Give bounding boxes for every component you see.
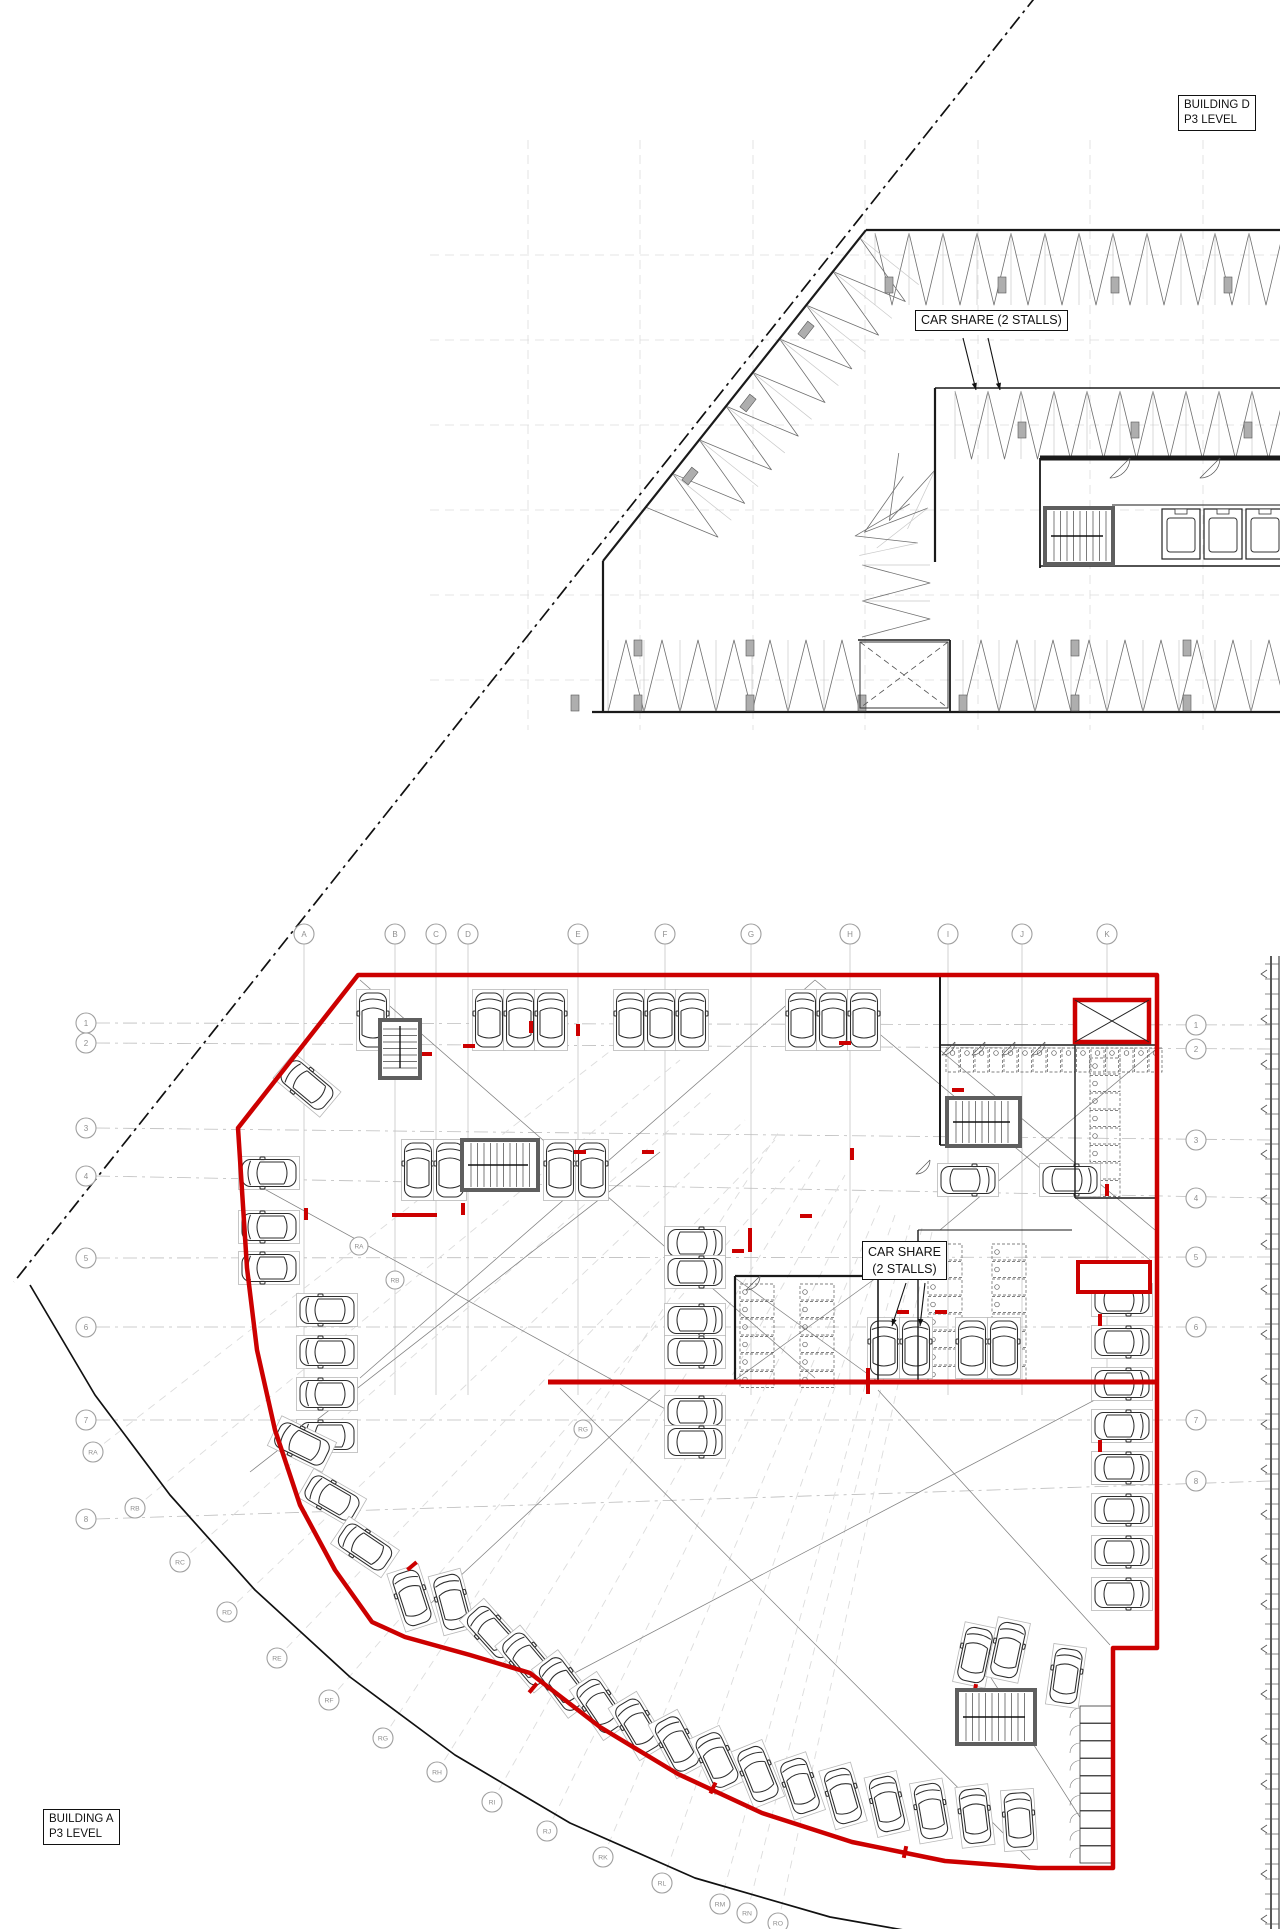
- car-symbol: [668, 1227, 722, 1259]
- car-symbol: [1095, 1494, 1149, 1526]
- bike-rack: [992, 1297, 1026, 1313]
- bike-rack-hoop: [743, 1342, 748, 1347]
- grid-bubble: RF: [319, 1690, 339, 1710]
- parked-car: [1000, 1788, 1037, 1851]
- grid-bubble-label: RI: [489, 1799, 496, 1806]
- building-d-label: BUILDING D P3 LEVEL: [1178, 95, 1256, 131]
- strip-chevron: [1261, 1330, 1267, 1338]
- storage-locker: [1080, 1776, 1112, 1793]
- parked-car: [774, 1752, 825, 1820]
- grid-bubble: H: [840, 924, 860, 944]
- bike-rack: [740, 1337, 774, 1353]
- parked-car: [955, 1784, 995, 1849]
- grid-bubble: E: [568, 924, 588, 944]
- parking-stall-v: [875, 233, 909, 305]
- column: [1018, 422, 1026, 438]
- parked-car: [273, 1053, 341, 1117]
- bike-rack-hoop: [995, 1302, 1000, 1307]
- parked-car: [330, 1516, 399, 1577]
- car-symbol: [941, 1164, 995, 1196]
- column: [634, 640, 642, 656]
- grid-bubble: G: [741, 924, 761, 944]
- parking-stall-v: [824, 640, 860, 712]
- red-wheel-stop: [839, 1041, 851, 1045]
- grid-bubble-label: J: [1020, 930, 1024, 939]
- stall-divider: [806, 305, 865, 352]
- storage-locker: [1080, 1741, 1112, 1758]
- bike-rack: [990, 1048, 1003, 1072]
- column: [1244, 422, 1252, 438]
- strip-chevron: [1261, 1420, 1267, 1428]
- bike-rack-hoop: [1139, 1051, 1144, 1056]
- strip-chevron: [1261, 1645, 1267, 1653]
- grid-bubble-label: 3: [1194, 1136, 1199, 1145]
- grid-bubble: 2: [1186, 1039, 1206, 1059]
- strip-chevron: [1261, 1555, 1267, 1563]
- grid-bubble: 2: [76, 1033, 96, 1053]
- strip-chevron: [1261, 1510, 1267, 1518]
- bike-rack-hoop: [995, 1285, 1000, 1290]
- parked-car: [1092, 1536, 1153, 1569]
- grid-bubble: RL: [652, 1873, 672, 1893]
- grid-bubble-label: 8: [84, 1515, 89, 1524]
- parking-stall-v: [909, 233, 943, 305]
- bike-rack-hoop: [995, 1267, 1000, 1272]
- grid-bubble: RA: [83, 1442, 103, 1462]
- car-share-lower-label: CAR SHARE (2 STALLS): [862, 1241, 947, 1280]
- parking-stall-v: [862, 565, 930, 601]
- bike-rack: [975, 1048, 988, 1072]
- red-wheel-stop: [304, 1208, 308, 1220]
- grid-bubble-label: RB: [130, 1505, 140, 1512]
- parked-car: [239, 1157, 300, 1190]
- bike-rack: [1090, 1128, 1120, 1144]
- bike-rack: [1135, 1048, 1148, 1072]
- column: [746, 695, 754, 711]
- parking-stall-v: [1035, 640, 1071, 712]
- bike-rack: [800, 1337, 834, 1353]
- grid-bubble: RA: [350, 1237, 368, 1255]
- strip-chevron: [1261, 1060, 1267, 1068]
- bike-rack: [1090, 1146, 1120, 1162]
- grid-bubble: K: [1097, 924, 1117, 944]
- strip-chevron: [1261, 1465, 1267, 1473]
- parking-stall-v: [1107, 640, 1143, 712]
- grid-bubble-label: H: [847, 930, 853, 939]
- grid-bubble: RD: [217, 1602, 237, 1622]
- car-symbol: [668, 1304, 722, 1336]
- parked-car: [909, 1778, 952, 1844]
- parking-stall-v: [1143, 640, 1179, 712]
- parked-car: [819, 1762, 868, 1830]
- strip-chevron: [1261, 1240, 1267, 1248]
- car-symbol: [614, 993, 646, 1047]
- grid-line-radial: [135, 1060, 680, 1508]
- parking-stall-v: [699, 406, 771, 470]
- car-symbol: [544, 1143, 576, 1197]
- leader-arrow: [963, 338, 976, 390]
- bike-rack-hoop: [743, 1307, 748, 1312]
- grid-bubble-label: 7: [84, 1416, 89, 1425]
- stall-divider: [753, 373, 812, 420]
- grid-bubble-label: 4: [84, 1172, 89, 1181]
- leader-arrowhead: [972, 383, 977, 390]
- parking-stall-v: [977, 233, 1011, 305]
- red-wheel-stop: [461, 1203, 465, 1215]
- parked-car: [665, 1396, 726, 1429]
- grid-bubble-label: 2: [84, 1039, 89, 1048]
- parking-stall-v: [943, 233, 977, 305]
- stall-divider: [877, 508, 928, 548]
- door-swing: [1032, 1042, 1045, 1055]
- grid-bubble-label: E: [575, 930, 580, 939]
- car-symbol: [1043, 1164, 1097, 1196]
- column: [746, 640, 754, 656]
- bike-rack-hoop: [931, 1285, 936, 1290]
- red-wheel-stop: [952, 1088, 964, 1092]
- car-symbol: [300, 1294, 354, 1326]
- storage-locker: [1080, 1724, 1112, 1741]
- grid-bubble: C: [426, 924, 446, 944]
- column: [634, 695, 642, 711]
- stall-divider: [908, 470, 935, 529]
- parked-car: [986, 1617, 1031, 1684]
- grid-bubble-label: 3: [84, 1124, 89, 1133]
- strip-chevron: [1261, 1690, 1267, 1698]
- grid-bubble: 8: [1186, 1471, 1206, 1491]
- bike-rack: [1077, 1048, 1090, 1072]
- parked-car: [473, 990, 506, 1051]
- parking-stall-v: [680, 640, 716, 712]
- column: [959, 695, 967, 711]
- car-symbol: [1001, 1792, 1037, 1848]
- red-wheel-stop: [897, 1310, 909, 1314]
- grid-bubble: 8: [76, 1509, 96, 1529]
- locker-door-swing: [1070, 1708, 1080, 1718]
- service-shaft: [1078, 1262, 1150, 1292]
- red-wheel-stop: [800, 1214, 812, 1218]
- parking-stall-v: [788, 640, 824, 712]
- locker-door-swing: [1070, 1831, 1080, 1841]
- grid-bubble-label: 1: [84, 1019, 89, 1028]
- parked-car: [297, 1378, 358, 1411]
- strip-chevron: [1261, 970, 1267, 978]
- building-a-label: BUILDING A P3 LEVEL: [43, 1809, 120, 1845]
- locker-door-swing: [1070, 1761, 1080, 1771]
- bike-rack-hoop: [1095, 1051, 1100, 1056]
- storage-locker: [1080, 1811, 1112, 1828]
- grid-bubble-label: A: [301, 930, 307, 939]
- stall-divider: [699, 440, 758, 487]
- red-wheel-stop: [935, 1310, 947, 1314]
- grid-bubble-label: RG: [578, 1426, 588, 1433]
- floor-plan-svg: ABCDEFGHIJK1122334455667788RARBRCRDRERFR…: [0, 0, 1280, 1929]
- parking-stall-v: [1045, 233, 1079, 305]
- column: [1224, 277, 1232, 293]
- car-symbol: [1095, 1410, 1149, 1442]
- car-symbol: [868, 1321, 900, 1375]
- door-swing: [746, 1276, 760, 1290]
- grid-bubble-label: 7: [1194, 1416, 1199, 1425]
- bike-rack-hoop: [1093, 1116, 1098, 1121]
- bike-rack-hoop: [743, 1360, 748, 1365]
- grid-bubble-label: RO: [773, 1920, 783, 1927]
- storage-locker: [1080, 1829, 1112, 1846]
- bike-rack: [1120, 1048, 1133, 1072]
- parking-stall-v: [1113, 233, 1147, 305]
- parking-stall-v: [806, 272, 878, 336]
- building-a-line2: P3 LEVEL: [49, 1827, 114, 1842]
- parking-stall-v: [726, 373, 798, 437]
- parking-stall-v: [1215, 233, 1249, 305]
- strip-chevron: [1261, 1015, 1267, 1023]
- grid-bubble: RO: [768, 1913, 788, 1929]
- car-symbol: [242, 1157, 296, 1189]
- parked-car: [938, 1164, 999, 1197]
- grid-bubble-label: I: [947, 930, 949, 939]
- bike-rack-hoop: [1023, 1051, 1028, 1056]
- car-symbol: [1095, 1326, 1149, 1358]
- grid-bubble-label: C: [433, 930, 439, 939]
- grid-line-radial: [329, 1160, 800, 1700]
- red-wheel-stop: [1098, 1440, 1102, 1452]
- grid-bubble-label: 2: [1194, 1045, 1199, 1054]
- car-symbol: [668, 1396, 722, 1428]
- grid-bubble: RN: [737, 1903, 757, 1923]
- column: [1183, 695, 1191, 711]
- grid-bubble: 1: [1186, 1015, 1206, 1035]
- grid-bubble: 3: [1186, 1130, 1206, 1150]
- column: [1111, 277, 1119, 293]
- grid-bubble: D: [458, 924, 478, 944]
- grid-bubble-label: 4: [1194, 1194, 1199, 1203]
- car-symbol: [473, 993, 505, 1047]
- grid-bubble: 4: [1186, 1188, 1206, 1208]
- parking-stall-v: [780, 305, 852, 369]
- grid-bubble: 6: [76, 1317, 96, 1337]
- car-share-top-label: CAR SHARE (2 STALLS): [915, 310, 1068, 331]
- parking-stall-v: [1251, 640, 1280, 712]
- strip-chevron: [1261, 1870, 1267, 1878]
- grid-bubble: RJ: [537, 1821, 557, 1841]
- locker-door-swing: [1070, 1726, 1080, 1736]
- parked-car: [676, 990, 709, 1051]
- column: [682, 467, 698, 485]
- column: [1183, 640, 1191, 656]
- grid-bubble-label: 6: [84, 1323, 89, 1332]
- grid-bubble: B: [385, 924, 405, 944]
- bike-rack-hoop: [1093, 1099, 1098, 1104]
- grid-line-radial: [437, 1160, 820, 1772]
- parked-car: [1092, 1410, 1153, 1443]
- bike-rack: [740, 1284, 774, 1300]
- strip-chevron: [1261, 1825, 1267, 1833]
- red-wheel-stop: [463, 1044, 475, 1048]
- car-symbol: [900, 1321, 932, 1375]
- parked-car: [297, 1336, 358, 1369]
- grid-bubble-label: RA: [354, 1243, 364, 1250]
- grid-bubble: RE: [267, 1648, 287, 1668]
- grid-bubbles: ABCDEFGHIJK1122334455667788RARBRCRDRERFR…: [76, 924, 1206, 1929]
- parking-stall-v: [864, 476, 928, 532]
- parked-car: [868, 1318, 901, 1379]
- bike-rack-hoop: [803, 1342, 808, 1347]
- car-symbol: [402, 1143, 434, 1197]
- parking-stall-v: [1249, 233, 1280, 305]
- column: [1071, 640, 1079, 656]
- column: [798, 321, 814, 339]
- strip-chevron: [1261, 1600, 1267, 1608]
- wall: [603, 230, 866, 561]
- parking-stall-v: [999, 640, 1035, 712]
- bike-rack-hoop: [995, 1250, 1000, 1255]
- bike-rack-hoop: [1066, 1051, 1071, 1056]
- grid-bubble-label: 5: [84, 1254, 89, 1263]
- bike-rack-hoop: [803, 1360, 808, 1365]
- grid-bubble-label: B: [392, 930, 397, 939]
- grid-bubble-label: RD: [222, 1609, 232, 1616]
- bike-rack-hoop: [1093, 1151, 1098, 1156]
- property-line: [14, 0, 1037, 1282]
- column: [1131, 422, 1139, 438]
- red-wheel-stop: [1105, 1184, 1109, 1196]
- parked-car: [988, 1318, 1021, 1379]
- bike-rack: [800, 1354, 834, 1370]
- building-a-line1: BUILDING A: [49, 1812, 114, 1827]
- sight-line: [878, 1390, 1110, 1645]
- car-symbol: [504, 993, 536, 1047]
- parking-stall-v: [753, 339, 825, 403]
- parked-car: [665, 1426, 726, 1459]
- grid-bubble: RK: [593, 1847, 613, 1867]
- grid-bubble-label: RE: [272, 1655, 282, 1662]
- elevator-door: [1217, 509, 1229, 514]
- parked-car: [239, 1211, 300, 1244]
- upper-plan: [571, 230, 1280, 712]
- red-wheel-stop: [1098, 1314, 1102, 1326]
- parked-car: [900, 1318, 933, 1379]
- grid-bubble: RC: [170, 1552, 190, 1572]
- grid-bubble-label: RC: [175, 1559, 185, 1566]
- parked-car: [544, 1140, 577, 1201]
- grid-bubble-label: RB: [390, 1277, 399, 1284]
- parked-car: [402, 1140, 435, 1201]
- column: [998, 277, 1006, 293]
- bike-rack-hoop: [965, 1051, 970, 1056]
- stall-divider: [673, 474, 732, 521]
- car-symbol: [668, 1426, 722, 1458]
- parked-car: [665, 1336, 726, 1369]
- parked-car: [1092, 1578, 1153, 1611]
- bike-rack: [992, 1262, 1026, 1278]
- grid-bubble-label: 8: [1194, 1477, 1199, 1486]
- grid-bubble: RI: [482, 1792, 502, 1812]
- grid-bubble-label: F: [663, 930, 668, 939]
- grid-bubble: 5: [76, 1248, 96, 1268]
- door-swing: [972, 1042, 985, 1055]
- locker-door-swing: [1070, 1778, 1080, 1788]
- column: [1071, 695, 1079, 711]
- locker-door-swing: [1070, 1743, 1080, 1753]
- parked-car: [665, 1256, 726, 1289]
- parked-car: [535, 990, 568, 1051]
- parking-stall-v: [752, 640, 788, 712]
- grid-bubble: RB: [386, 1271, 404, 1289]
- car-symbol: [645, 993, 677, 1047]
- column: [571, 695, 579, 711]
- bike-rack-hoop: [1093, 1081, 1098, 1086]
- grid-bubble: 6: [1186, 1317, 1206, 1337]
- bike-rack-hoop: [1093, 1134, 1098, 1139]
- strip-chevron: [1261, 1735, 1267, 1743]
- bike-rack-hoop: [1110, 1051, 1115, 1056]
- red-wheel-stop: [642, 1150, 654, 1154]
- parked-car: [1092, 1494, 1153, 1527]
- storage-locker: [1080, 1846, 1112, 1863]
- parked-car: [864, 1771, 910, 1838]
- parking-stall-v: [862, 601, 930, 637]
- red-wheel-stop: [574, 1150, 586, 1154]
- parking-stall-v: [963, 640, 999, 712]
- parking-stall-v: [1215, 640, 1251, 712]
- bike-rack: [1062, 1048, 1075, 1072]
- parked-car: [848, 990, 881, 1051]
- bike-rack: [1019, 1048, 1032, 1072]
- grid-bubble: RB: [125, 1498, 145, 1518]
- parking-stall-v: [1011, 233, 1045, 305]
- grid-bubble: I: [938, 924, 958, 944]
- grid-bubble: 4: [76, 1166, 96, 1186]
- grid-bubble: RM: [710, 1894, 730, 1914]
- parked-car: [665, 1227, 726, 1260]
- sight-line: [428, 1390, 660, 1606]
- bike-rack: [740, 1354, 774, 1370]
- grid-bubble-label: K: [1104, 930, 1110, 939]
- parking-stall-v: [644, 640, 680, 712]
- strip-chevron: [1261, 1105, 1267, 1113]
- parked-car: [665, 1304, 726, 1337]
- grid-bubble-label: RK: [598, 1854, 608, 1861]
- bike-rack: [1106, 1048, 1119, 1072]
- bike-rack-hoop: [743, 1290, 748, 1295]
- bike-rack: [1048, 1048, 1061, 1072]
- bike-rack-hoop: [931, 1302, 936, 1307]
- column: [858, 695, 866, 711]
- strip-chevron: [1261, 1780, 1267, 1788]
- bike-rack: [1091, 1048, 1104, 1072]
- car-symbol: [1095, 1536, 1149, 1568]
- parked-car: [387, 1564, 437, 1632]
- car-symbol: [300, 1336, 354, 1368]
- strip-chevron: [1261, 1915, 1267, 1923]
- grid-bubble-label: RJ: [543, 1828, 551, 1835]
- parked-car: [1040, 1164, 1101, 1197]
- column: [885, 277, 893, 293]
- grid-bubble: RH: [427, 1762, 447, 1782]
- bike-rack: [1090, 1058, 1120, 1074]
- column: [740, 394, 756, 412]
- parking-stall-v: [1079, 233, 1113, 305]
- bike-rack-hoop: [1052, 1051, 1057, 1056]
- bike-rack-hoop: [979, 1051, 984, 1056]
- stall-divider: [833, 272, 892, 319]
- parked-car: [786, 990, 819, 1051]
- bike-rack: [928, 1279, 962, 1295]
- grid-bubble-label: RH: [432, 1769, 442, 1776]
- parking-stall-v: [1181, 233, 1215, 305]
- parked-car: [504, 990, 537, 1051]
- grid-bubble: 7: [76, 1410, 96, 1430]
